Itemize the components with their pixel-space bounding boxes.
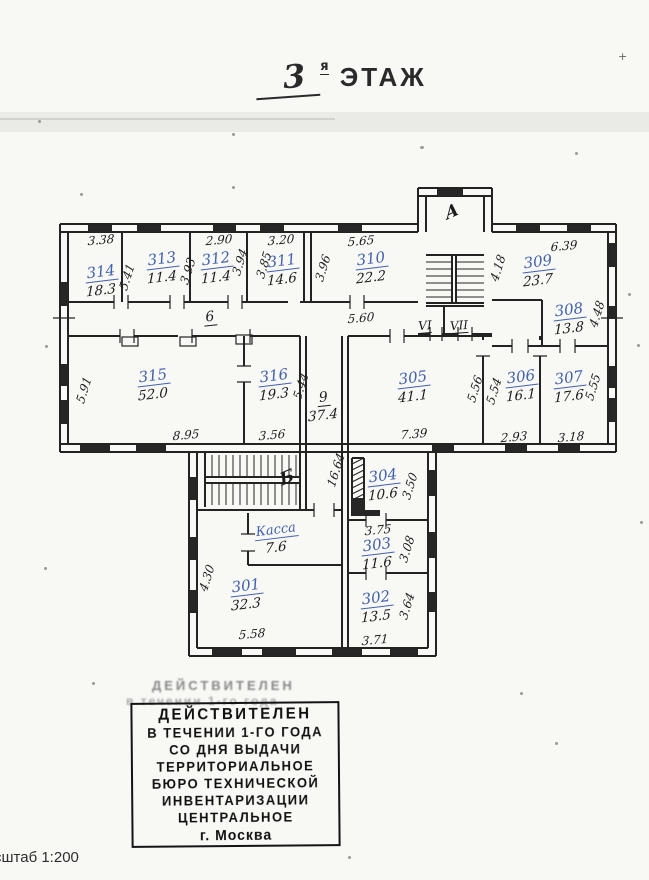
stamp-line: СО ДНЯ ВЫДАЧИ <box>169 741 301 758</box>
room-304-label: 304 10.6 <box>367 466 400 503</box>
room-309-label: 309 23.7 <box>522 252 555 289</box>
door-ticks <box>53 295 623 580</box>
room-315-label: 315 52.0 <box>137 366 170 403</box>
room-314-label: 314 18.3 <box>85 262 118 299</box>
dimension-corr6-len: 5.60 <box>347 310 374 326</box>
room-312-label: 312 11.4 <box>200 249 233 286</box>
corridor-9-label: 9 37.4 <box>308 387 338 424</box>
room-302-label: 302 13.5 <box>360 588 393 625</box>
room-area: 23.7 <box>522 270 555 290</box>
dimension-w310: 5.65 <box>347 233 374 249</box>
dimension-w312: 2.90 <box>205 232 232 248</box>
dimension-w309: 6.39 <box>550 238 577 254</box>
scan-speck <box>38 120 41 123</box>
scan-speck <box>628 293 631 296</box>
room-308-label: 308 13.8 <box>553 300 586 337</box>
room-303-label: 303 11.6 <box>361 535 394 572</box>
lobby-vii-label: VII <box>450 315 468 334</box>
dimension-w305: 7.39 <box>400 426 427 442</box>
scan-speck <box>420 146 424 149</box>
dimension-w307: 3.18 <box>557 429 584 445</box>
scan-speck <box>520 692 523 695</box>
scan-speck <box>232 133 235 136</box>
scan-speck <box>640 521 643 524</box>
scan-speck <box>80 193 83 196</box>
scan-speck <box>44 567 47 570</box>
room-310-label: 310 22.2 <box>355 249 388 286</box>
stamp-ghost-line1: ДЕЙСТВИТЕЛЕН <box>152 678 295 693</box>
validity-stamp: ДЕЙСТВИТЕЛЕН В ТЕЧЕНИИ 1-ГО ГОДА СО ДНЯ … <box>130 701 340 848</box>
room-area: 11.4 <box>146 267 179 287</box>
corridor-6-label: 6 <box>204 306 217 326</box>
dimension-w303: 3.75 <box>364 522 391 538</box>
room-area: 41.1 <box>397 386 430 406</box>
scan-speck <box>92 682 95 685</box>
floor-plan-document: 3я ЭТАЖ <box>0 0 649 880</box>
room-area: 17.6 <box>553 386 586 406</box>
room-area: 52.0 <box>137 384 170 404</box>
room-area: 11.6 <box>361 553 394 573</box>
scale-label: сштаб 1:200 <box>0 849 79 866</box>
scan-speck <box>348 856 351 859</box>
scan-speck <box>637 344 640 347</box>
stamp-line: ЦЕНТРАЛЬНОЕ <box>178 809 294 826</box>
stamp-line: В ТЕЧЕНИИ 1-ГО ГОДА <box>147 724 323 741</box>
stamp-line: ТЕРРИТОРИАЛЬНОЕ <box>156 758 314 775</box>
scan-speck <box>555 742 558 745</box>
room-area: 22.2 <box>355 267 388 287</box>
room-316-label: 316 19.3 <box>258 366 291 403</box>
room-area: 13.8 <box>553 318 586 338</box>
room-307-label: 307 17.6 <box>553 368 586 405</box>
room-area: 10.6 <box>367 484 400 504</box>
scan-speck <box>575 152 578 155</box>
room-area: 11.4 <box>200 267 233 287</box>
room-306-label: 306 16.1 <box>505 367 538 404</box>
dimension-w302: 3.71 <box>361 632 388 648</box>
stamp-line: БЮРО ТЕХНИЧЕСКОЙ <box>152 775 320 792</box>
scan-speck <box>45 345 48 348</box>
room-313-label: 313 11.4 <box>146 249 179 286</box>
scan-speck <box>232 186 235 189</box>
stamp-line: ДЕЙСТВИТЕЛЕН <box>158 705 311 724</box>
stamp-line: г. Москва <box>200 826 272 843</box>
room-area: 19.3 <box>258 384 291 404</box>
room-area: 16.1 <box>505 385 538 405</box>
stamp-line: ИНВЕНТАРИЗАЦИИ <box>162 792 310 809</box>
room-305-label: 305 41.1 <box>397 368 430 405</box>
dimension-w316: 3.56 <box>258 427 285 443</box>
room-kassa-label: Касса 7.6 <box>254 519 298 556</box>
room-area: 18.3 <box>85 280 118 300</box>
scan-plus-mark: + <box>618 50 627 63</box>
room-301-label: 301 32.3 <box>230 576 263 613</box>
dimension-w306: 2.93 <box>500 429 527 445</box>
room-area: 13.5 <box>360 606 393 626</box>
dimension-w315: 8.95 <box>172 427 199 443</box>
room-area: 32.3 <box>230 594 263 614</box>
lobby-vi-label: VI <box>418 315 431 334</box>
dimension-w314: 3.38 <box>87 232 114 248</box>
dimension-w301: 5.58 <box>238 626 265 642</box>
dimension-w311: 3.20 <box>267 232 294 248</box>
room-area: 14.6 <box>266 269 299 289</box>
